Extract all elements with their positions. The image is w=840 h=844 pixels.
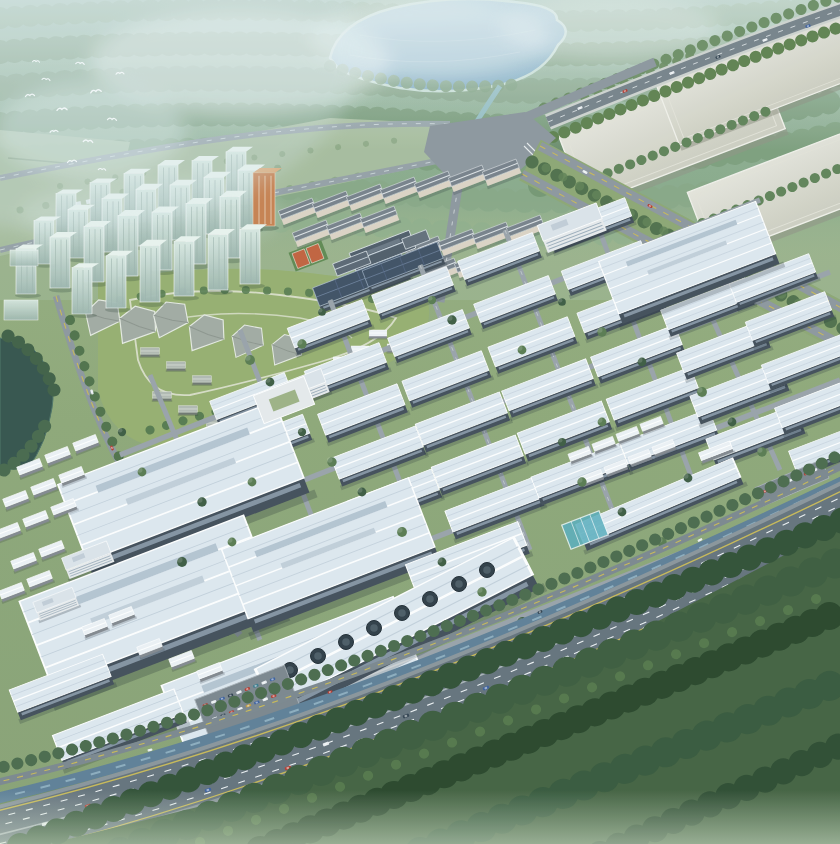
rendering-canvas [0, 0, 840, 844]
aerial-rendering [0, 0, 840, 844]
atmosphere-overlay [0, 0, 840, 844]
